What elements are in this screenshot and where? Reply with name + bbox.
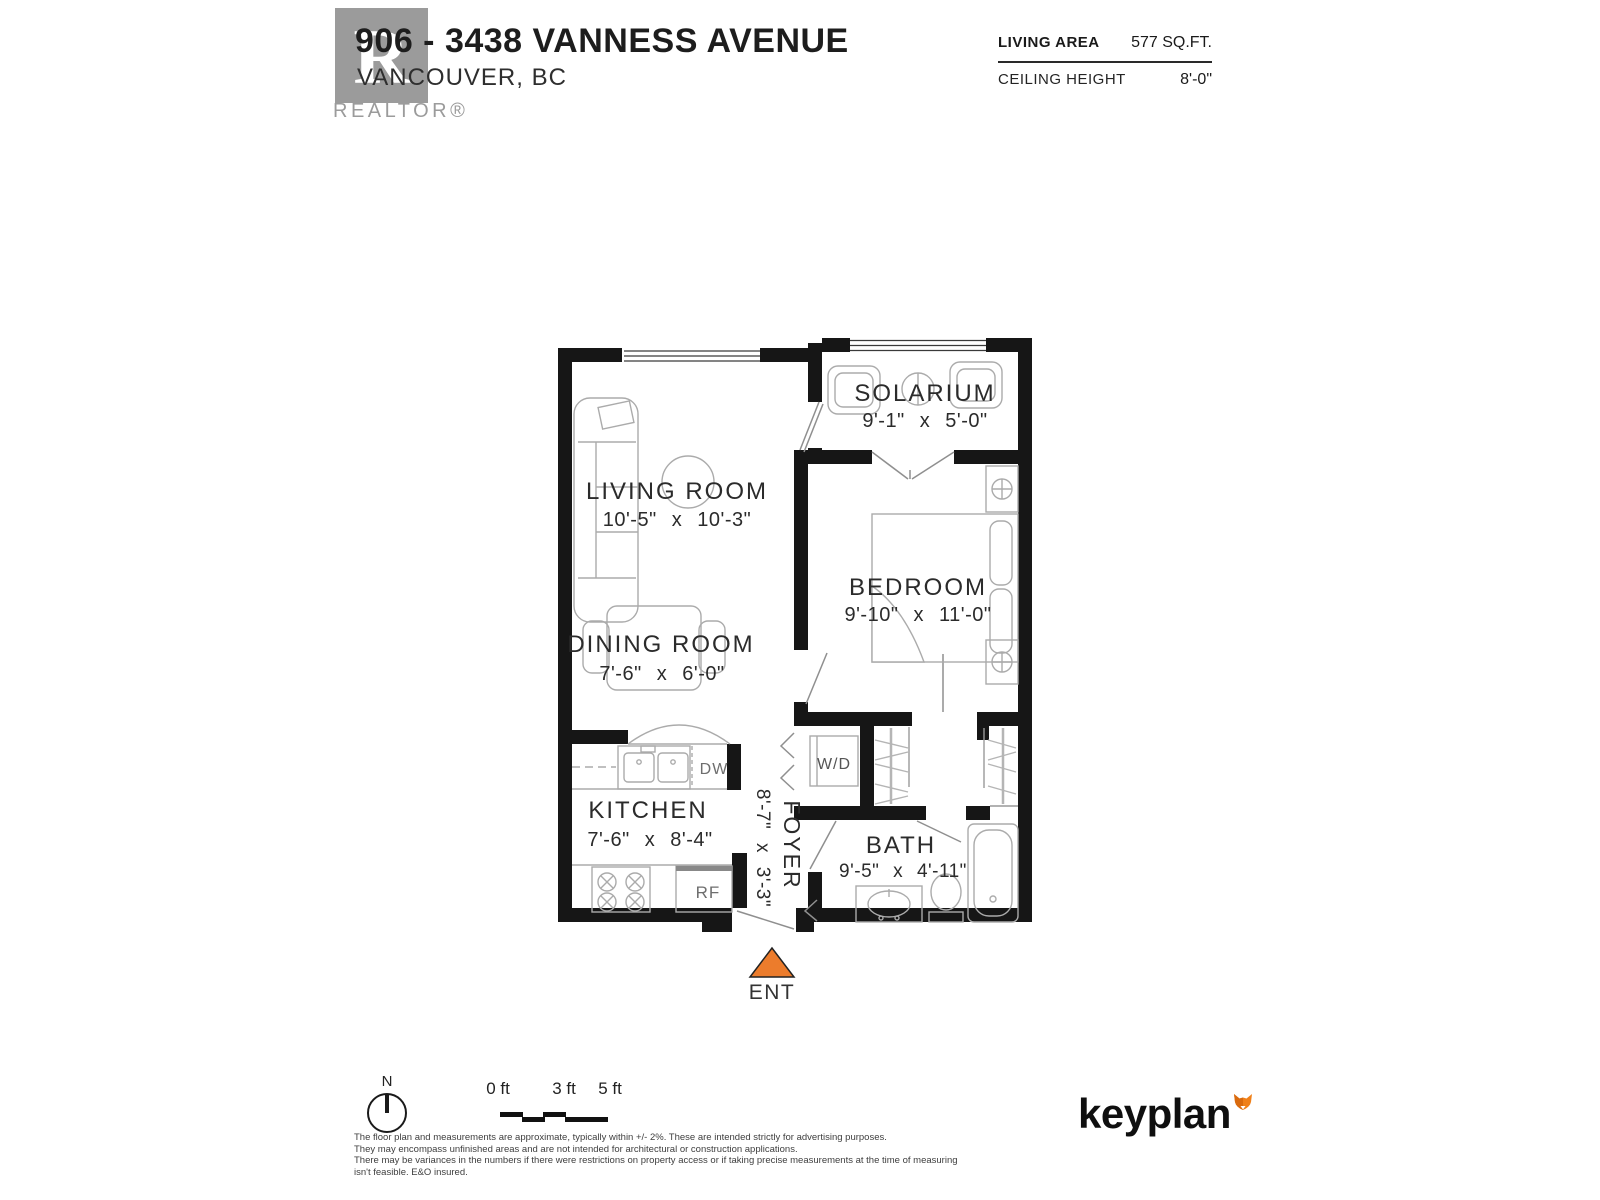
scale-bar: 0 ft 3 ft 5 ft — [468, 1072, 638, 1128]
nightstand — [986, 466, 1018, 512]
kitchen-sink — [618, 746, 690, 789]
pillow — [990, 521, 1012, 585]
disclaimer: The floor plan and measurements are appr… — [354, 1132, 974, 1178]
north-compass: N — [356, 1064, 420, 1136]
north-label: N — [382, 1073, 393, 1090]
room-label-solarium: SOLARIUM — [854, 380, 995, 407]
pillow — [990, 589, 1012, 653]
room-label-foyer: FOYER — [779, 800, 805, 889]
room-label-bedroom: BEDROOM — [849, 574, 987, 601]
ceiling-height-label: CEILING HEIGHT — [998, 71, 1126, 88]
fox-icon — [1233, 1093, 1253, 1111]
closet-hall — [984, 728, 1018, 806]
entry-label: ENT — [749, 981, 796, 1004]
room-dims-solarium: 9'-1" x 5'-0" — [862, 410, 987, 432]
ceiling-height-value: 8'-0" — [1180, 71, 1212, 89]
scale-tick-5: 5 ft — [598, 1079, 622, 1098]
scale-bar-segments — [500, 1112, 608, 1122]
room-dims-bedroom: 9'-10" x 11'-0" — [844, 604, 991, 626]
scale-tick-0: 0 ft — [486, 1079, 510, 1098]
keyplan-wordmark: keyplan — [1078, 1092, 1231, 1136]
living-area-value: 577 SQ.FT. — [1131, 34, 1212, 52]
disclaimer-line-2: They may encompass unfinished areas and … — [354, 1144, 974, 1156]
closet-bedroom — [875, 727, 909, 804]
living-area-row: LIVING AREA 577 SQ.FT. — [998, 34, 1212, 63]
refrigerator-label: RF — [696, 883, 721, 902]
washer-dryer-label: W/D — [817, 756, 851, 773]
room-label-bath: BATH — [866, 832, 936, 859]
floor-plan: LIVING ROOM 10'-5" x 10'-3" SOLARIUM 9'-… — [540, 330, 1050, 1020]
room-label-dining: DINING ROOM — [567, 631, 754, 658]
window-solarium — [850, 341, 986, 351]
room-label-kitchen: KITCHEN — [588, 797, 707, 824]
burner — [598, 873, 644, 911]
room-label-living: LIVING ROOM — [586, 478, 768, 505]
scale-tick-3: 3 ft — [552, 1079, 576, 1098]
dishwasher-label: DW — [700, 761, 729, 778]
room-dims-bath: 9'-5" x 4'-11" — [839, 861, 967, 882]
room-dims-kitchen: 7'-6" x 8'-4" — [587, 829, 712, 851]
disclaimer-line-3: There may be variances in the numbers if… — [354, 1155, 974, 1178]
stove — [592, 867, 650, 912]
realtor-brand-text: REALTOR® — [333, 100, 468, 123]
bathtub — [968, 824, 1018, 922]
ceiling-height-row: CEILING HEIGHT 8'-0" — [998, 63, 1212, 89]
keyplan-logo: keyplan — [1078, 1092, 1253, 1136]
room-dims-foyer: 8'-7" x 3'-3" — [752, 789, 773, 907]
stats-panel: LIVING AREA 577 SQ.FT. CEILING HEIGHT 8'… — [998, 34, 1212, 89]
room-dims-dining: 7'-6" x 6'-0" — [599, 663, 724, 685]
page-title: 906 - 3438 VANNESS AVENUE — [355, 22, 849, 61]
window-living-room — [624, 351, 760, 361]
page-subtitle: VANCOUVER, BC — [357, 64, 567, 92]
disclaimer-line-1: The floor plan and measurements are appr… — [354, 1132, 974, 1144]
room-dims-living: 10'-5" x 10'-3" — [603, 509, 752, 531]
entry-arrow-icon — [750, 948, 794, 977]
living-area-label: LIVING AREA — [998, 34, 1100, 51]
